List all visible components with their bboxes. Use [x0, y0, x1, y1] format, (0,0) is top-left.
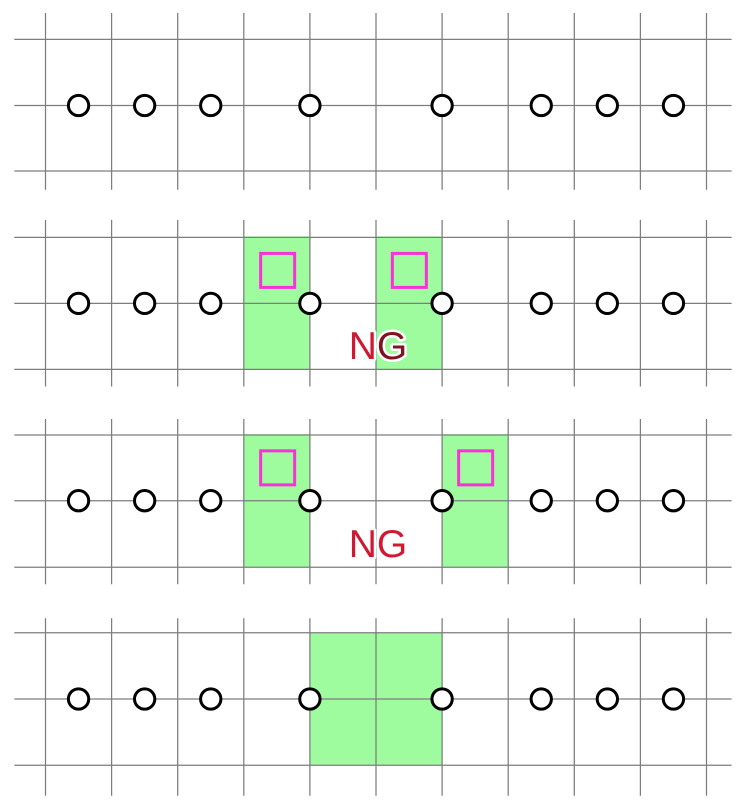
- svg-text:NG: NG: [349, 523, 408, 566]
- svg-text:NG: NG: [349, 325, 408, 368]
